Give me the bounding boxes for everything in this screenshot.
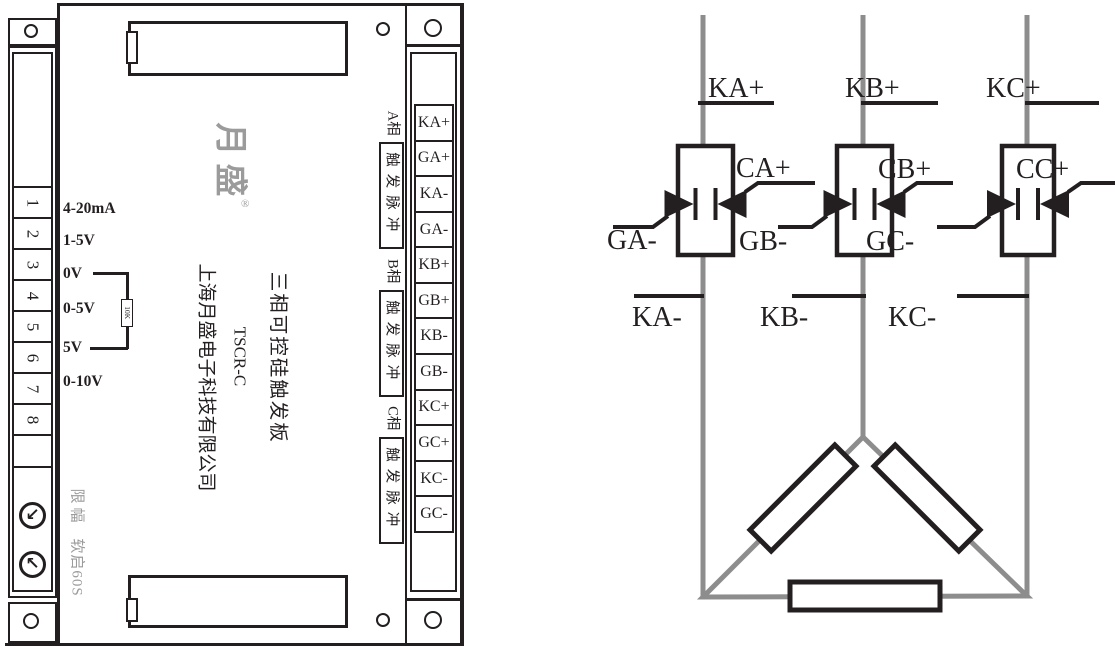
resistor-10k-label: 10K	[123, 301, 131, 325]
terminal-kb-minus[interactable]: KB-	[416, 319, 452, 355]
pot-arrow-icon: ↖	[25, 556, 39, 573]
phase-a-pulse-label: 触发脉冲	[384, 145, 399, 245]
input-label-5v: 5V	[63, 340, 82, 356]
pot-arrow-icon: ↙	[25, 507, 39, 524]
edge-connector-top	[128, 21, 348, 76]
thyristor-a-left-bar	[694, 188, 698, 220]
left-terminal-6: 6	[23, 353, 43, 362]
load-resistor-right	[874, 445, 980, 551]
pot-softstart[interactable]: ↖	[19, 551, 46, 578]
left-terminal-cell: 1	[14, 188, 51, 219]
left-terminal-5: 5	[23, 322, 43, 331]
mount-hole-bottom-left	[23, 613, 39, 629]
label-ka-plus: KA+	[708, 75, 764, 103]
input-label-15v: 1-5V	[63, 233, 95, 249]
left-terminal-1: 1	[23, 198, 43, 207]
label-ca-plus: CA+	[736, 155, 791, 183]
right-strip-divider-top	[405, 44, 462, 47]
terminal-ka-minus[interactable]: KA-	[416, 177, 452, 213]
left-terminal-cell: 3	[14, 250, 51, 281]
terminal-kb-plus[interactable]: KB+	[416, 248, 452, 284]
brand-logo: 月盛	[213, 123, 246, 203]
phase-c-pulse-label: 触发脉冲	[384, 440, 399, 540]
edge-connector-bottom	[128, 575, 348, 628]
left-terminal-3: 3	[23, 260, 43, 269]
delta-wiring-triangle	[703, 437, 1027, 597]
left-terminal-7: 7	[23, 384, 43, 393]
terminal-kc-minus[interactable]: KC-	[416, 462, 452, 498]
drawing-canvas: KA+ KB+ KC+ CA+ CB+ CC+ GA- GB- GC- KA- …	[0, 0, 1115, 649]
phase-b-pulse-label: 触发脉冲	[384, 293, 399, 393]
left-terminal-2: 2	[23, 229, 43, 238]
right-terminal-block: KA+ GA+ KA- GA- KB+ GB+ KB- GB- KC+ GC+ …	[414, 104, 454, 533]
terminal-kc-plus[interactable]: KC+	[416, 391, 452, 427]
right-strip-divider-bottom	[405, 598, 462, 601]
label-kb-minus: KB-	[760, 304, 808, 332]
label-kc-minus: KC-	[888, 304, 936, 332]
phase-a-label: A相	[385, 108, 400, 138]
wire-0v	[93, 272, 128, 275]
input-label-0v: 0V	[63, 266, 82, 282]
left-terminal-cell: 5	[14, 312, 51, 343]
label-kc-plus: KC+	[986, 75, 1041, 103]
pot-label-softstart: 软启60S	[69, 536, 84, 600]
left-terminal-4: 4	[23, 291, 43, 300]
label-kb-plus: KB+	[845, 75, 900, 103]
thyristor-c-right-bar	[1036, 188, 1040, 220]
left-terminal-block: 1 2 3 4 5 6 7 8	[12, 186, 53, 468]
phase-c-label: C相	[385, 403, 400, 433]
board-bottom-edge	[5, 643, 60, 646]
terminal-gc-minus[interactable]: GC-	[416, 497, 452, 531]
terminal-gb-minus[interactable]: GB-	[416, 355, 452, 391]
mount-hole-top-right	[424, 19, 442, 37]
pot-limit[interactable]: ↙	[19, 502, 46, 529]
left-terminal-cell: 8	[14, 405, 51, 436]
left-terminal-cell: 7	[14, 374, 51, 405]
phase-b-label: B相	[385, 256, 400, 286]
thyristor-a-right-bar	[714, 188, 718, 220]
terminal-ga-minus[interactable]: GA-	[416, 213, 452, 249]
pot-label-limit: 限幅	[69, 485, 84, 531]
left-terminal-cell: 2	[14, 219, 51, 250]
input-label-420ma: 4-20mA	[63, 201, 116, 217]
left-terminal-cell: 6	[14, 343, 51, 374]
left-terminal-8: 8	[23, 415, 43, 424]
edge-connector-bottom-notch	[126, 598, 138, 622]
mount-hole-top-left	[24, 24, 38, 38]
load-resistor-left	[750, 445, 856, 551]
wire-5v	[90, 347, 128, 350]
mount-hole-bottom-right	[424, 611, 442, 629]
label-ga-minus: GA-	[607, 227, 657, 255]
gate-lead-cc-plus	[1068, 183, 1115, 192]
terminal-ka-plus[interactable]: KA+	[416, 106, 452, 142]
board-hole-top	[376, 22, 390, 36]
terminal-gc-plus[interactable]: GC+	[416, 426, 452, 462]
thyristor-b-left-bar	[853, 188, 857, 220]
label-gc-minus: GC-	[866, 228, 914, 256]
board-hole-bottom	[376, 613, 390, 627]
gate-lead-ca-plus	[745, 183, 815, 192]
input-label-010v: 0-10V	[63, 374, 103, 390]
gate-lead-gc-minus	[937, 216, 990, 227]
label-cc-plus: CC+	[1016, 156, 1069, 184]
delta-load	[750, 445, 980, 610]
load-resistor-bottom	[790, 582, 940, 610]
thyristor-b-right-bar	[873, 188, 877, 220]
label-cb-plus: CB+	[878, 156, 931, 184]
terminal-ga-plus[interactable]: GA+	[416, 142, 452, 178]
company-name: 上海月盛电子科技有限公司	[197, 243, 216, 513]
registered-mark: ®	[241, 199, 249, 210]
terminal-gb-plus[interactable]: GB+	[416, 284, 452, 320]
input-label-05v: 0-5V	[63, 301, 95, 317]
product-title: 三相可控硅触发板	[267, 268, 287, 448]
label-ka-minus: KA-	[632, 304, 682, 332]
left-terminal-cell: 4	[14, 281, 51, 312]
edge-connector-top-notch	[126, 31, 138, 64]
label-gb-minus: GB-	[739, 228, 787, 256]
thyristor-c-left-bar	[1016, 188, 1020, 220]
model-number: TSCR-C	[232, 312, 249, 402]
